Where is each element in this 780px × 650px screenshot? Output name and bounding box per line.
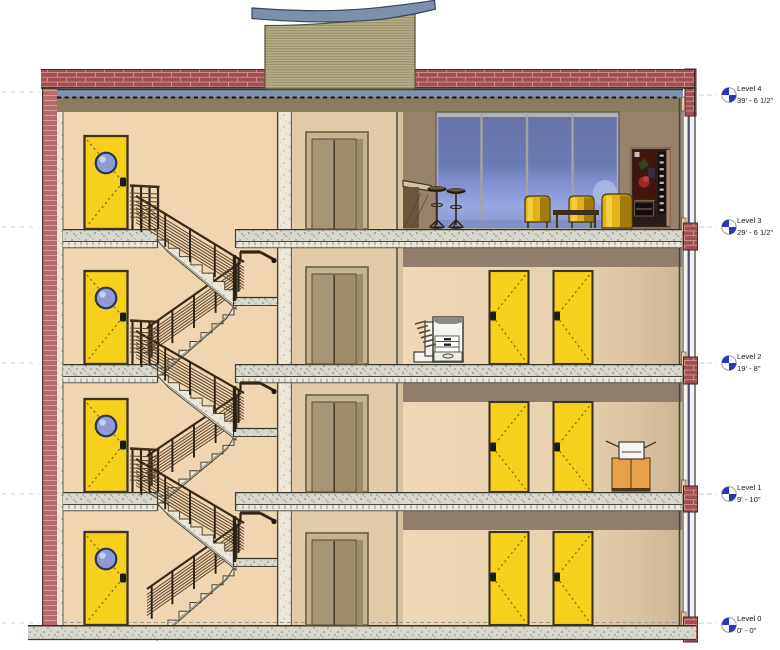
svg-text:29' - 6 1/2": 29' - 6 1/2"	[737, 228, 774, 237]
svg-text:39' - 6 1/2": 39' - 6 1/2"	[737, 96, 774, 105]
svg-text:0' - 0": 0' - 0"	[737, 626, 757, 635]
svg-text:Level 1: Level 1	[737, 483, 762, 492]
svg-text:Level 3: Level 3	[737, 216, 762, 225]
svg-text:Level 2: Level 2	[737, 352, 762, 361]
svg-text:9' - 10": 9' - 10"	[737, 495, 761, 504]
svg-text:Level 4: Level 4	[737, 84, 762, 93]
svg-text:Level 0: Level 0	[737, 614, 762, 623]
svg-text:19' - 8": 19' - 8"	[737, 364, 761, 373]
